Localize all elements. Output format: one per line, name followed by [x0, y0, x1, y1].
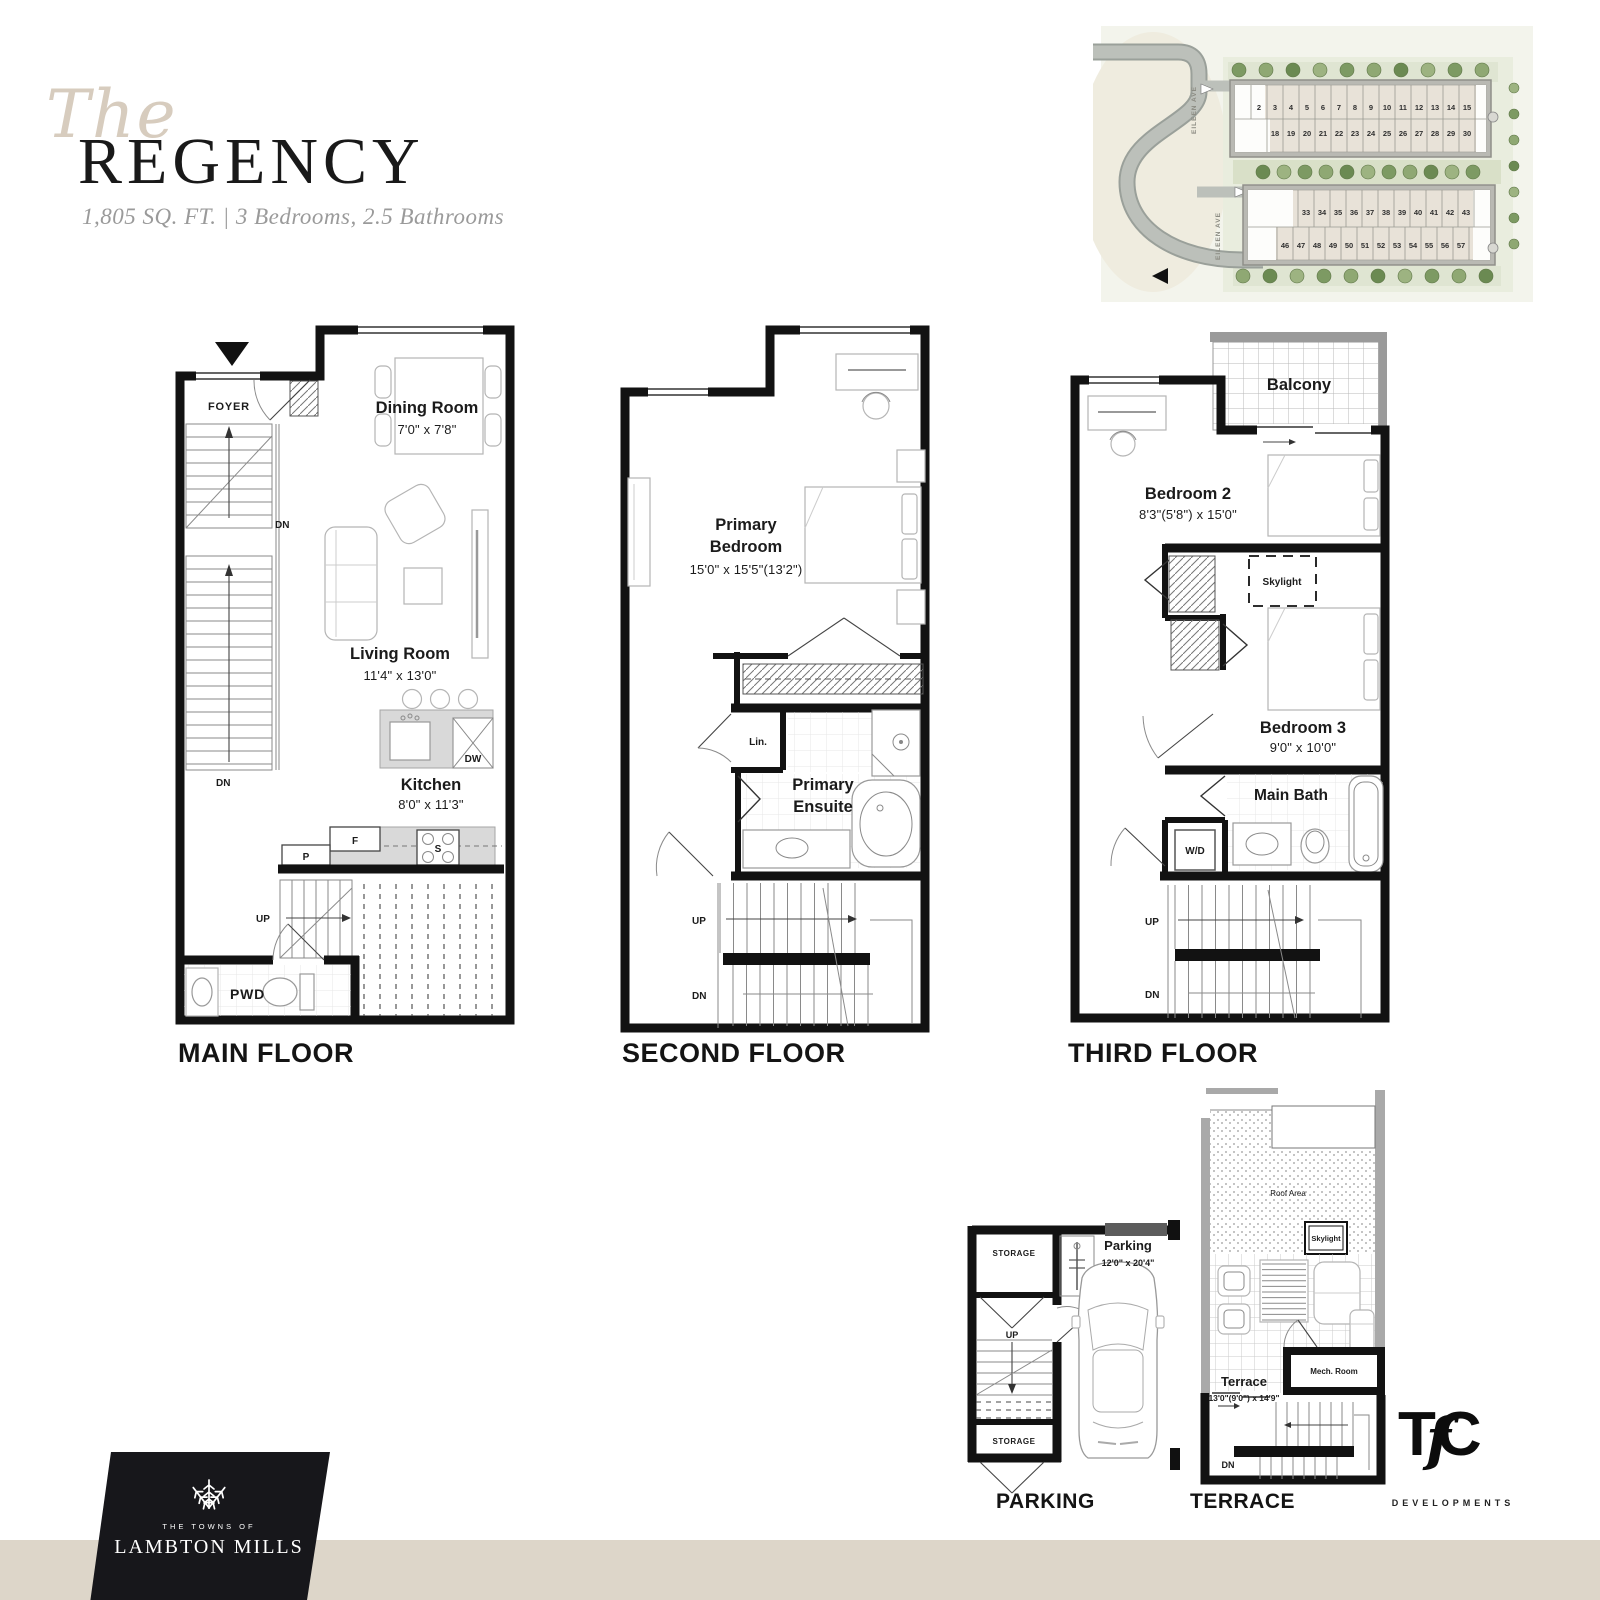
unit-number: 50	[1345, 241, 1353, 250]
unit-number: 23	[1351, 129, 1359, 138]
closet	[1171, 620, 1219, 670]
dining-room-label: Dining Room	[376, 399, 479, 417]
up-label: UP	[1006, 1330, 1019, 1340]
unit-number: 36	[1350, 208, 1358, 217]
unit-number: 37	[1366, 208, 1374, 217]
soaker-tub	[852, 780, 920, 867]
unit-number: 43	[1462, 208, 1470, 217]
terrace-title: TERRACE	[1190, 1490, 1295, 1514]
unit-number: 39	[1398, 208, 1406, 217]
unit-number: 24	[1367, 129, 1376, 138]
ensuite-label-1: Primary	[792, 776, 854, 794]
unit-number: 25	[1383, 129, 1391, 138]
bedroom2-label: Bedroom 2	[1145, 485, 1231, 503]
fridge-label: F	[352, 836, 358, 847]
terrace-label: Terrace	[1221, 1374, 1267, 1389]
side-table	[404, 568, 442, 604]
third-floor-title: THIRD FLOOR	[1068, 1038, 1258, 1069]
unit-number: 34	[1318, 208, 1327, 217]
linen-label: Lin.	[749, 737, 767, 748]
patio-chair	[1218, 1304, 1250, 1334]
dashed-stair-outline	[364, 884, 492, 1016]
unit-number: 28	[1431, 129, 1439, 138]
street-label: EILEEN AVE	[1215, 212, 1222, 260]
toilet	[263, 978, 297, 1006]
unit-number: 40	[1414, 208, 1422, 217]
pantry-label: P	[303, 852, 310, 863]
desk	[836, 354, 918, 390]
up-label: UP	[1145, 917, 1159, 928]
dn-label: DN	[1145, 990, 1159, 1001]
unit-number: 52	[1377, 241, 1385, 250]
primary-bedroom-label-1: Primary	[715, 516, 777, 534]
dn-label: DN	[692, 991, 706, 1002]
parking-plan: STORAGE STORAGE UP Parking 12'0" x 20'4"	[960, 1190, 1185, 1505]
bath-vanity	[1233, 823, 1291, 865]
ensuite	[656, 710, 925, 876]
stairs	[1168, 885, 1361, 1018]
powder-room	[180, 924, 359, 1020]
page-title: REGENCY	[78, 124, 425, 200]
stairs	[976, 1340, 1052, 1418]
unit-number: 35	[1334, 208, 1342, 217]
sofa	[325, 527, 377, 640]
patio-chair	[1218, 1266, 1250, 1296]
living-room-label: Living Room	[350, 645, 450, 663]
dining-room-dims: 7'0" x 7'8"	[397, 422, 456, 437]
unit-number: 15	[1463, 103, 1471, 112]
car	[1072, 1262, 1164, 1458]
main-bath-label: Main Bath	[1254, 787, 1328, 804]
kitchen-label: Kitchen	[401, 776, 462, 794]
nightstand	[897, 450, 925, 482]
kitchen	[278, 690, 504, 870]
terrace-dims: 13'0"(9'0") x 14'9"	[1208, 1393, 1279, 1403]
ensuite-vanity	[743, 830, 850, 868]
primary-bedroom-dims: 15'0" x 15'5"(13'2")	[690, 562, 803, 577]
storage-label: STORAGE	[993, 1249, 1036, 1258]
floorplan-page: The REGENCY 1,805 SQ. FT. | 3 Bedrooms, …	[0, 0, 1600, 1600]
third-floor-plan: Balcony Bedroom 2 8'3"(5'8") x 15'0" Sky…	[1063, 318, 1393, 1023]
bedroom3-dims: 9'0" x 10'0"	[1270, 740, 1337, 755]
kitchen-dims: 8'0" x 11'3"	[398, 797, 464, 812]
closet	[1169, 556, 1215, 612]
lambton-tagline: THE TOWNS OF	[162, 1522, 255, 1531]
unit-number: 20	[1303, 129, 1311, 138]
balcony-label: Balcony	[1267, 376, 1332, 394]
parking-title: PARKING	[996, 1490, 1095, 1514]
unit-number: 56	[1441, 241, 1449, 250]
bedroom3-label: Bedroom 3	[1260, 719, 1346, 737]
stairs	[718, 883, 912, 1028]
terrace-plan: Roof Area Skylight Terrace 13'0"(9'0") x…	[1176, 1070, 1426, 1500]
bedroom2-dims: 8'3"(5'8") x 15'0"	[1139, 507, 1237, 522]
unit-number: 10	[1383, 103, 1391, 112]
unit-number: 21	[1319, 129, 1327, 138]
unit-number: 41	[1430, 208, 1438, 217]
living-room-dims: 11'4" x 13'0"	[364, 668, 437, 683]
mech-room-label: Mech. Room	[1310, 1367, 1358, 1376]
second-floor-title: SECOND FLOOR	[622, 1038, 846, 1069]
wheat-icon	[179, 1466, 239, 1516]
armchair	[381, 481, 448, 548]
unit-number: 30	[1463, 129, 1471, 138]
unit-number: 46	[1281, 241, 1289, 250]
bed	[1268, 608, 1380, 710]
dn-label: DN	[216, 778, 230, 789]
site-block-b: 3334353637383940414243 46474849505152535…	[1243, 185, 1495, 265]
foyer	[254, 380, 318, 420]
unit-number: 9	[1369, 103, 1373, 112]
wd-label: W/D	[1185, 846, 1204, 857]
stairs-upper	[186, 424, 279, 770]
unit-number: 51	[1361, 241, 1369, 250]
unit-number: 3	[1273, 103, 1277, 112]
stairs-lower	[186, 556, 272, 770]
desk-chair	[1111, 432, 1135, 456]
storage-label: STORAGE	[993, 1437, 1036, 1446]
unit-number: 49	[1329, 241, 1337, 250]
unit-number: 27	[1415, 129, 1423, 138]
unit-number: 29	[1447, 129, 1455, 138]
unit-number: 19	[1287, 129, 1295, 138]
primary-bedroom-label-2: Bedroom	[710, 538, 782, 556]
unit-number: 55	[1425, 241, 1433, 250]
unit-number: 5	[1305, 103, 1309, 112]
unit-number: 8	[1353, 103, 1357, 112]
lambton-mills-logo: THE TOWNS OF LAMBTON MILLS	[88, 1452, 330, 1600]
shower	[872, 710, 920, 776]
up-label: UP	[692, 916, 706, 927]
tv-console	[472, 510, 488, 658]
unit-number: 53	[1393, 241, 1401, 250]
unit-number: 47	[1297, 241, 1305, 250]
entry-arrow-icon	[215, 342, 249, 366]
ensuite-label-2: Ensuite	[793, 798, 853, 816]
main-floor-plan: FOYER DN DN Dining Room 7'0" x 7'8" Livi…	[172, 318, 517, 1063]
unit-number: 22	[1335, 129, 1343, 138]
unit-number: 48	[1313, 241, 1321, 250]
skylight-label: Skylight	[1311, 1234, 1341, 1243]
second-floor-plan: Primary Bedroom 15'0" x 15'5"(13'2") Lin…	[618, 318, 933, 1033]
dw-label: DW	[465, 754, 482, 765]
unit-number: 54	[1409, 241, 1418, 250]
nightstand	[897, 590, 925, 624]
bath-zone	[1111, 770, 1385, 880]
tc-developments-logo: TfC	[1398, 1404, 1518, 1468]
kitchen-sink	[390, 722, 430, 760]
up-label: UP	[256, 914, 270, 925]
main-floor-title: MAIN FLOOR	[178, 1038, 354, 1069]
roof-area-label: Roof Area	[1270, 1189, 1306, 1198]
unit-number: 13	[1431, 103, 1439, 112]
unit-number: 11	[1399, 103, 1407, 112]
closet	[713, 618, 925, 708]
parking-label: Parking	[1104, 1238, 1152, 1253]
unit-number: 6	[1321, 103, 1325, 112]
lambton-name: LAMBTON MILLS	[114, 1536, 304, 1559]
tc-developments-wordmark: DEVELOPMENTS	[1388, 1498, 1518, 1508]
unit-number: 42	[1446, 208, 1454, 217]
bed	[1268, 455, 1380, 536]
dresser	[628, 478, 650, 586]
site-plan: 23456789101112131415 1819202122232425262…	[1093, 22, 1538, 307]
unit-number: 2	[1257, 103, 1261, 112]
unit-number: 12	[1415, 103, 1423, 112]
unit-number: 57	[1457, 241, 1465, 250]
street-label: EILEEN AVE	[1191, 86, 1198, 134]
unit-number: 18	[1271, 129, 1279, 138]
site-block-a: 23456789101112131415 1819202122232425262…	[1230, 80, 1491, 157]
living-furniture	[325, 481, 488, 658]
toilet	[1301, 829, 1329, 863]
unit-number: 33	[1302, 208, 1310, 217]
title-specs: 1,805 SQ. FT. | 3 Bedrooms, 2.5 Bathroom…	[82, 204, 504, 230]
parking-dims: 12'0" x 20'4"	[1102, 1258, 1155, 1268]
balcony-slider	[1257, 424, 1371, 436]
dn-label: DN	[1222, 1460, 1235, 1470]
dn-label: DN	[275, 520, 289, 531]
unit-number: 7	[1337, 103, 1341, 112]
desk-chair	[863, 393, 889, 419]
unit-number: 38	[1382, 208, 1390, 217]
skylight-label: Skylight	[1263, 577, 1303, 588]
pwd-label: PWD	[230, 986, 265, 1002]
foyer-label: FOYER	[208, 401, 250, 413]
unit-number: 26	[1399, 129, 1407, 138]
stove-label: S	[435, 844, 442, 855]
garage-door	[1105, 1223, 1167, 1236]
unit-number: 14	[1447, 103, 1456, 112]
